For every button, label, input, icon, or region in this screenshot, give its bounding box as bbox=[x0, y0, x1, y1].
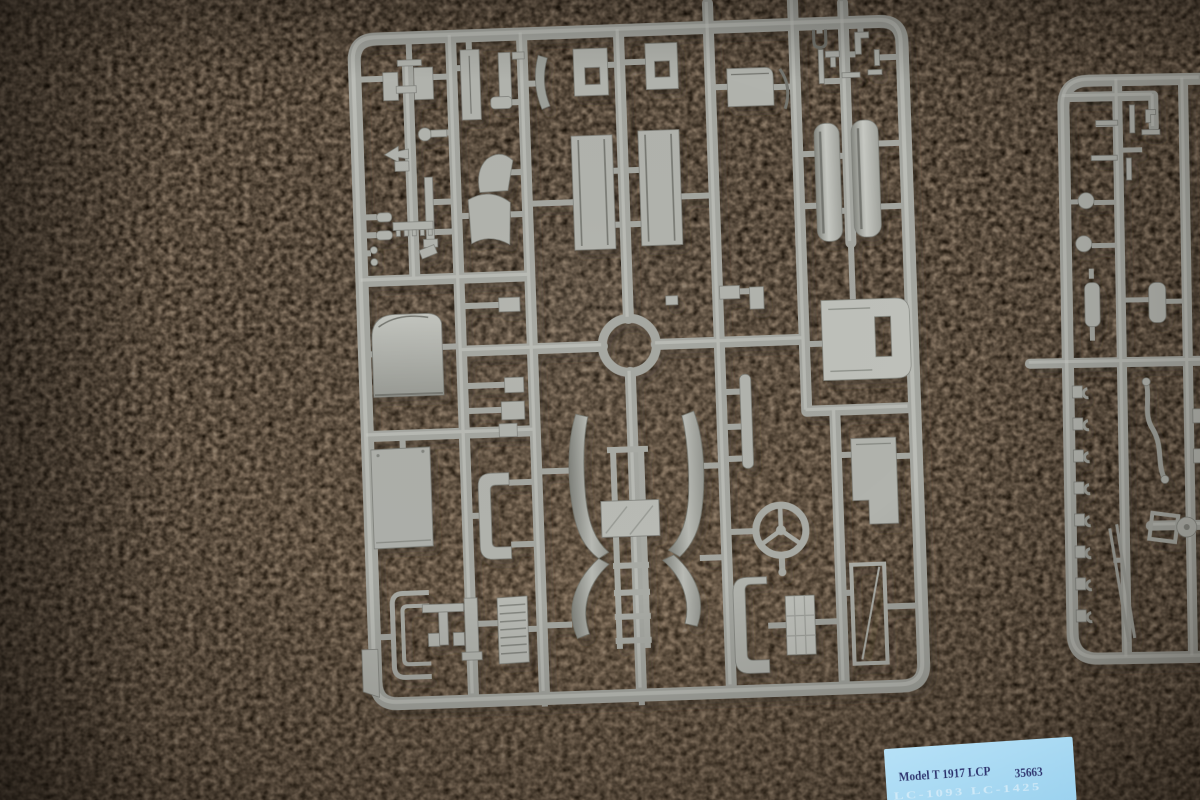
photo-canvas: Model T 1917 LCP 35663 LC-1093 LC-1425 bbox=[0, 0, 1200, 800]
top-shadow bbox=[0, 0, 1200, 800]
label-kit-number: 35663 bbox=[1014, 764, 1043, 781]
